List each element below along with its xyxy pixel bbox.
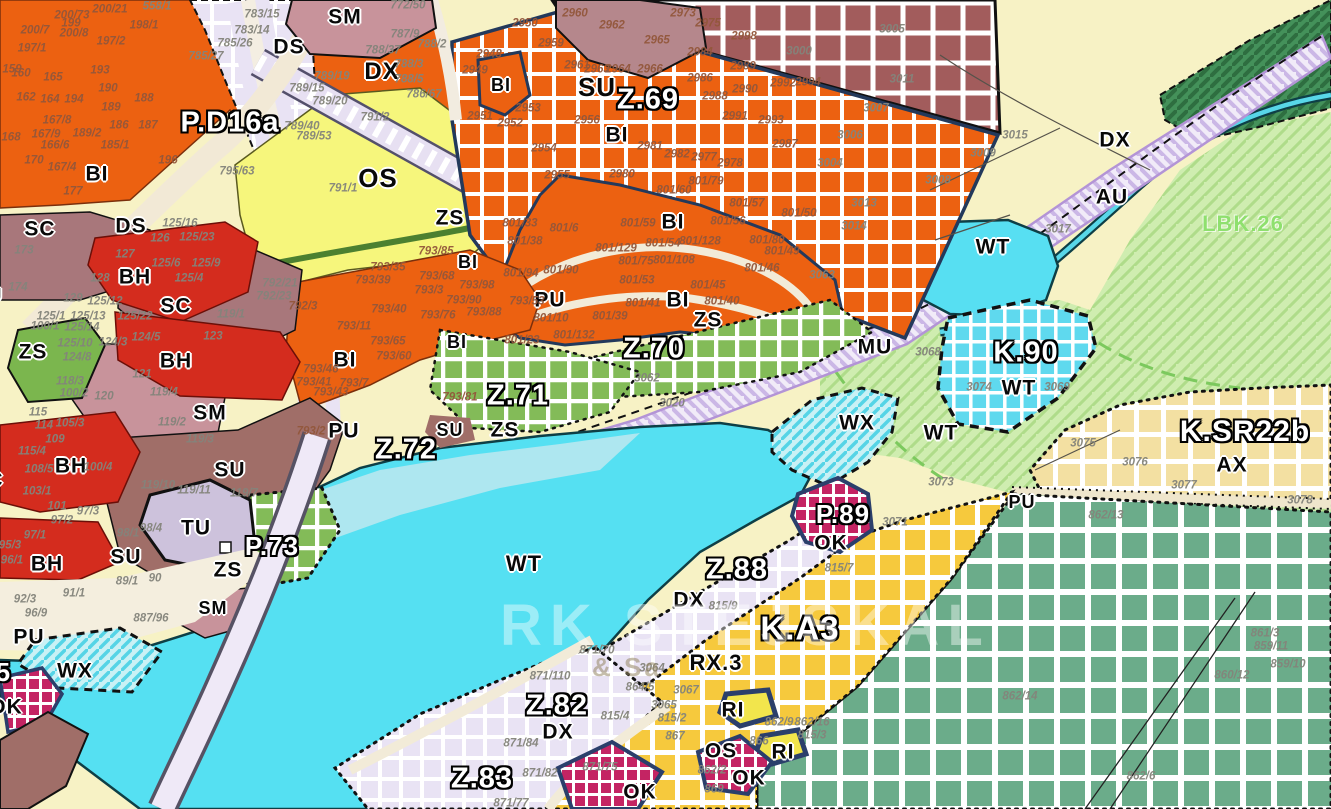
map-areas-layer — [0, 0, 1331, 809]
area-ri-1 — [720, 690, 776, 726]
area-bh-3 — [0, 412, 140, 512]
zoning-map-canvas[interactable]: P.D16aZ.68Z.69Z.70Z.71Z.72P.73P.75Z.82Z.… — [0, 0, 1331, 809]
tu-court — [220, 542, 231, 553]
